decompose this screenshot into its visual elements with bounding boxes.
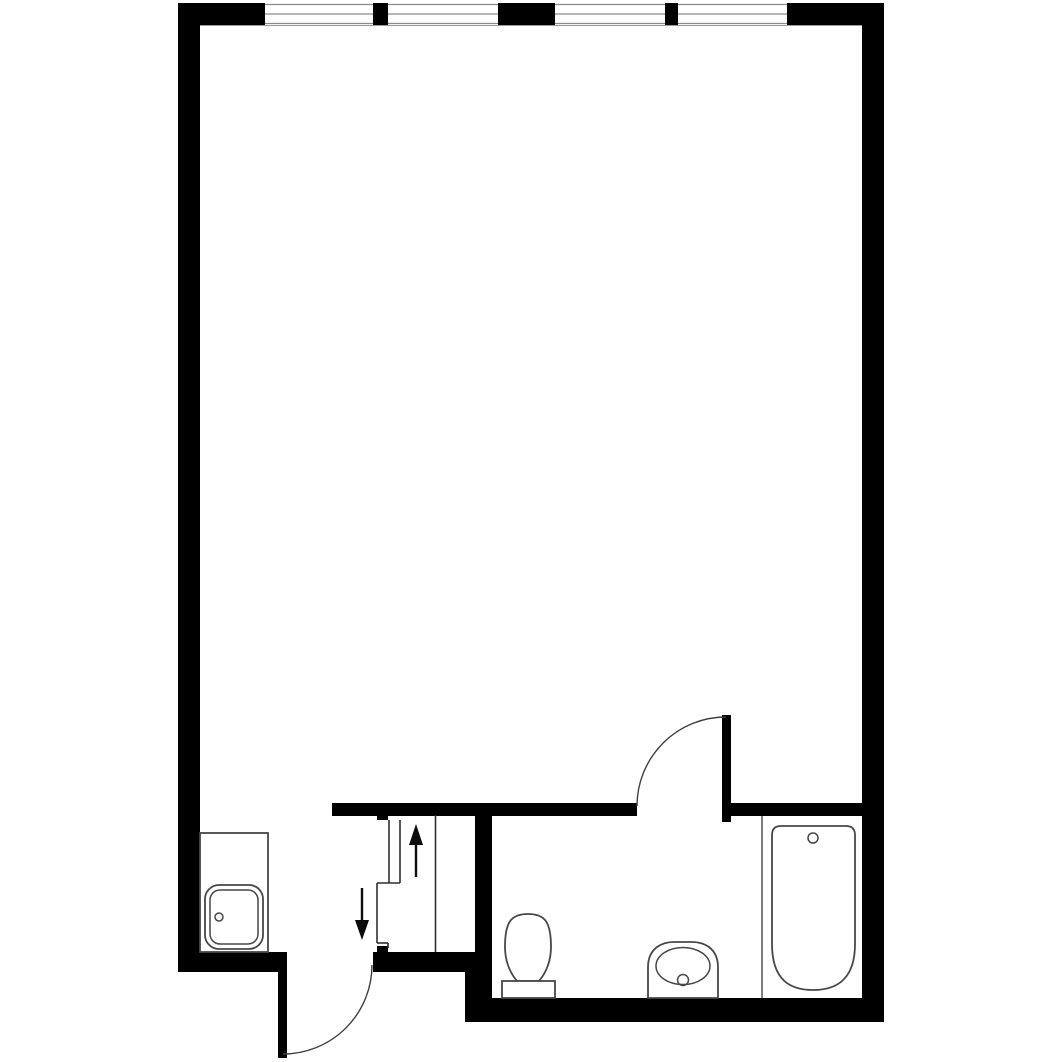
floor-plan: [0, 0, 1062, 1062]
entry-side-wall: [178, 952, 278, 972]
bathroom-top-wall: [728, 803, 862, 816]
floor-plan-canvas: [0, 0, 1062, 1062]
bathroom-sink-vanity: [648, 942, 718, 998]
right-exterior-wall: [862, 3, 884, 1022]
left-exterior-wall: [178, 3, 200, 972]
bathroom-door-leaf: [722, 715, 731, 822]
window-center-pier: [498, 3, 555, 25]
stair-up-arrow-head: [409, 824, 423, 845]
window-mullion-1: [373, 3, 388, 25]
stair-top-tab: [377, 813, 388, 820]
toilet-bowl: [505, 914, 551, 981]
entry-door-swing-arc: [283, 965, 372, 1054]
entry-down-arrow-head: [355, 920, 369, 940]
toilet-tank: [502, 981, 555, 998]
entry-door-leaf: [278, 952, 287, 1058]
stair-bottom-tab: [377, 946, 388, 952]
fixtures: [200, 816, 855, 998]
kitchen-sink-outer: [205, 885, 263, 949]
bathroom-door-swing-arc: [637, 717, 726, 806]
bathroom-bottom-wall: [465, 998, 884, 1022]
bathtub: [772, 826, 855, 990]
bathroom-corner-step: [465, 972, 492, 998]
window-mullion-2: [665, 3, 678, 25]
stairs: [355, 815, 436, 952]
stair-bottom-wall: [373, 952, 492, 972]
